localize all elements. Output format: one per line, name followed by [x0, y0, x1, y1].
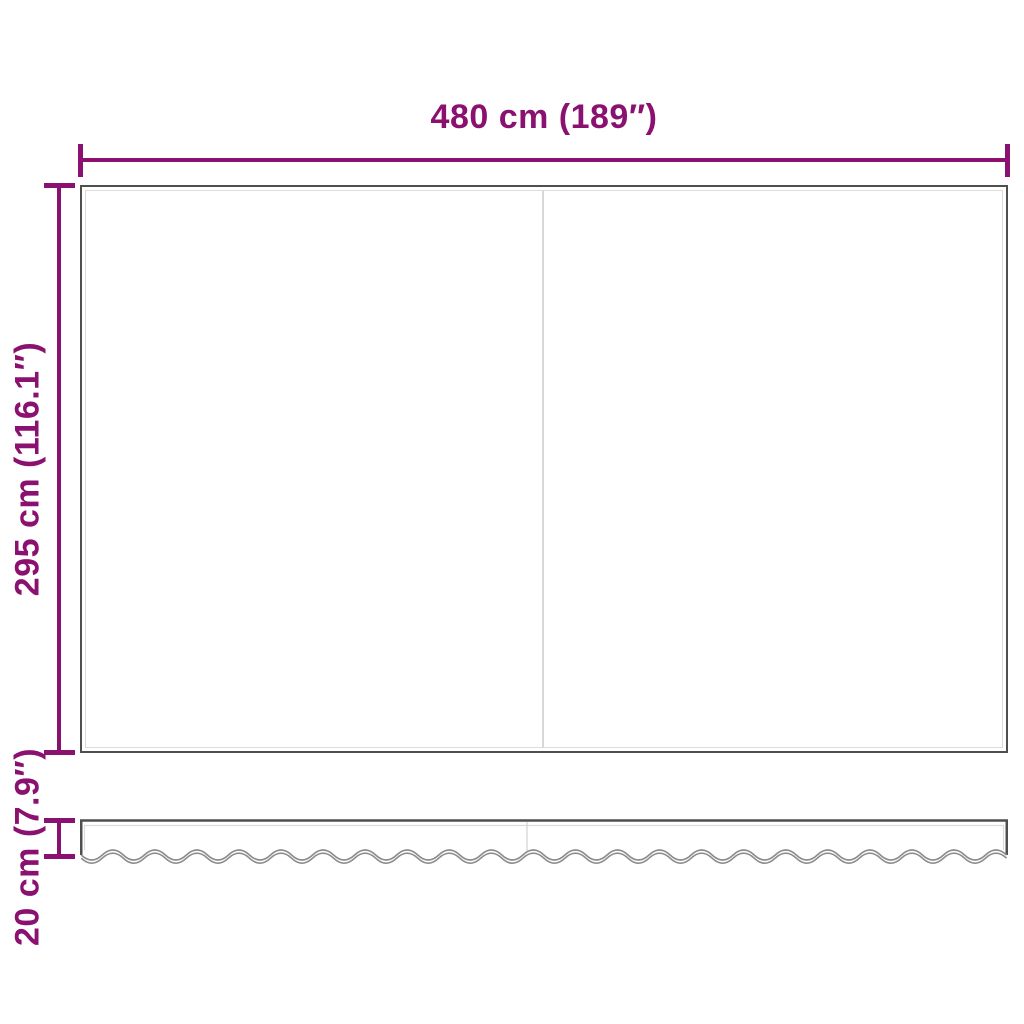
width-dimension-cap-right	[1005, 144, 1010, 177]
valance-strip	[80, 819, 1008, 871]
valance-height-dimension-line	[57, 821, 61, 857]
fabric-inner-hem-line	[85, 190, 1003, 748]
valance-height-dimension-label: 20 cm (7.9″)	[9, 748, 48, 946]
width-dimension-line	[80, 158, 1008, 162]
valance-outline-svg	[80, 819, 1008, 871]
height-dimension-line	[57, 185, 61, 753]
width-dimension-cap-left	[78, 144, 83, 177]
height-dimension-label: 295 cm (116.1″)	[9, 342, 48, 596]
fabric-panel	[80, 185, 1008, 753]
dimension-diagram: 480 cm (189″) 295 cm (116.1″) 20 cm (7.9…	[0, 0, 1024, 1024]
valance-height-dimension-cap-top	[44, 818, 75, 823]
fabric-center-seam	[542, 190, 544, 748]
height-dimension-cap-bottom	[44, 750, 75, 755]
valance-height-dimension-cap-bottom	[44, 854, 75, 859]
width-dimension-label: 480 cm (189″)	[80, 98, 1008, 137]
height-dimension-cap-top	[44, 183, 75, 188]
